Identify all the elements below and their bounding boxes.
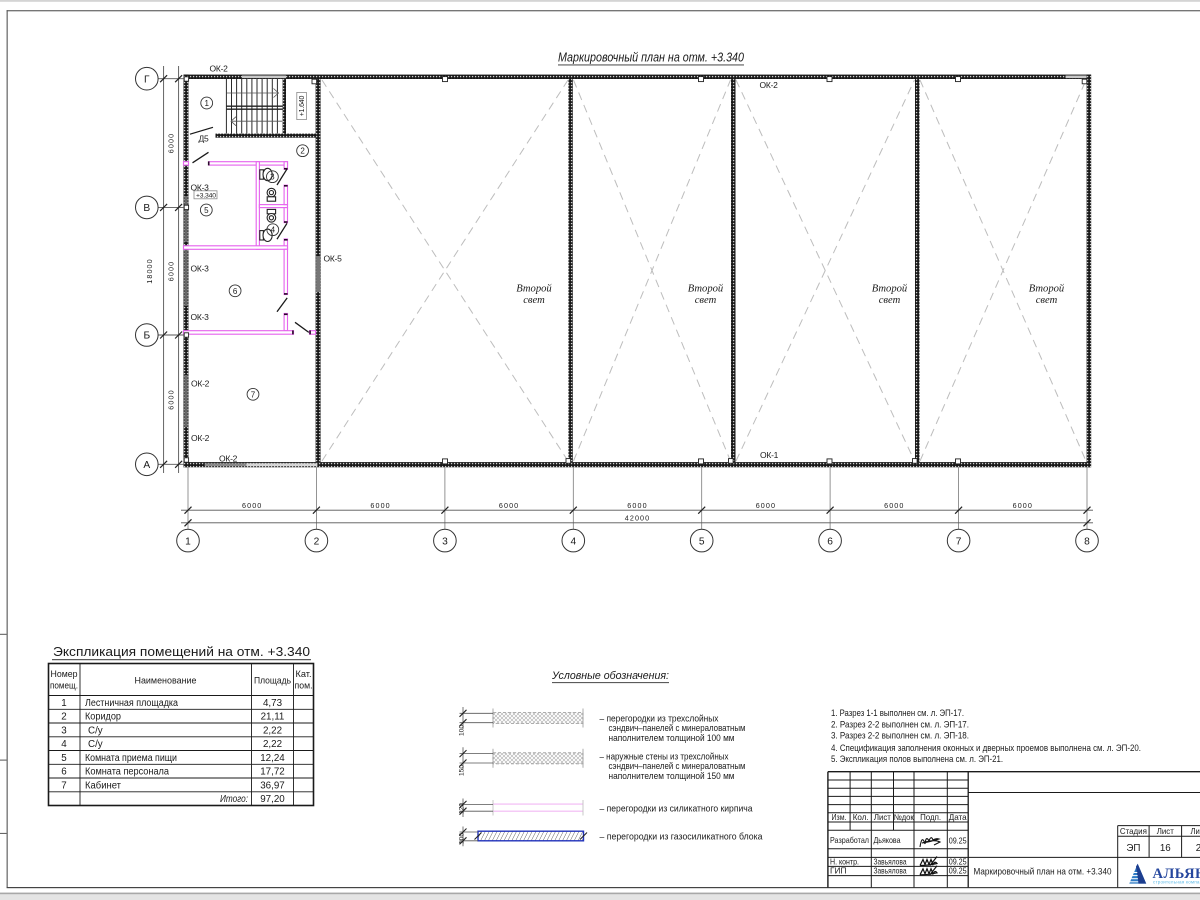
svg-text:Дьякова: Дьякова <box>874 835 901 845</box>
svg-text:наполнителем толщиной 100 мм: наполнителем толщиной 100 мм <box>609 733 735 743</box>
svg-text:5. Экспликация полов выполнена: 5. Экспликация полов выполнена см. л. ЭП… <box>831 753 1003 764</box>
svg-text:Комната персонала: Комната персонала <box>85 767 170 778</box>
svg-text:6: 6 <box>827 536 833 547</box>
svg-text:ОК-3: ОК-3 <box>191 183 210 193</box>
svg-text:Лист: Лист <box>874 812 891 822</box>
svg-text:– наружные стены из трехслойны: – наружные стены из трехслойных <box>600 752 729 762</box>
svg-text:Кабинет: Кабинет <box>85 781 121 792</box>
svg-text:3. Разрез 2-2 выполнен см. л.: 3. Разрез 2-2 выполнен см. л. ЭП-18. <box>831 730 969 741</box>
svg-text:свет: свет <box>523 295 545 306</box>
svg-text:6000: 6000 <box>884 501 904 510</box>
svg-text:Лист: Лист <box>1157 826 1174 836</box>
svg-text:09.25: 09.25 <box>949 836 967 846</box>
svg-text:1: 1 <box>204 99 209 108</box>
svg-text:ОК-2: ОК-2 <box>219 453 238 463</box>
svg-text:Д5: Д5 <box>199 133 210 143</box>
svg-text:97,20: 97,20 <box>260 794 285 805</box>
svg-text:2: 2 <box>300 147 305 156</box>
svg-text:4. Спецификация заполнения око: 4. Спецификация заполнения оконных и две… <box>831 742 1141 753</box>
svg-text:2: 2 <box>61 712 66 723</box>
svg-text:2: 2 <box>1196 843 1200 854</box>
svg-text:ГИП: ГИП <box>830 866 847 876</box>
svg-text:Второй: Второй <box>688 284 724 295</box>
svg-text:36,97: 36,97 <box>260 781 285 792</box>
svg-text:6000: 6000 <box>370 501 390 510</box>
svg-text:Б: Б <box>143 331 150 342</box>
svg-text:сэндвич–панелей с минераловатн: сэндвич–панелей с минераловатным <box>609 761 746 771</box>
svg-text:Кат.: Кат. <box>296 669 312 680</box>
svg-text:Комната приема пищи: Комната приема пищи <box>85 753 177 764</box>
svg-text:6000: 6000 <box>167 389 176 409</box>
svg-text:09.25: 09.25 <box>949 866 967 876</box>
svg-text:1. Разрез 1-1 выполнен см. л.: 1. Разрез 1-1 выполнен см. л. ЭП-17. <box>831 707 964 718</box>
svg-text:пом.: пом. <box>295 681 313 692</box>
svg-text:100: 100 <box>459 725 466 736</box>
svg-text:4: 4 <box>570 536 576 547</box>
svg-text:6000: 6000 <box>167 261 176 281</box>
svg-text:Площадь: Площадь <box>254 676 291 687</box>
svg-text:3: 3 <box>270 173 275 182</box>
svg-text:42000: 42000 <box>625 513 651 522</box>
svg-text:– перегородки из газосиликатно: – перегородки из газосиликатного блока <box>600 832 763 842</box>
svg-text:№док: №док <box>894 812 914 822</box>
svg-text:5: 5 <box>61 753 67 764</box>
svg-text:Листов: Листов <box>1191 826 1200 836</box>
svg-text:7: 7 <box>61 781 66 792</box>
svg-text:Подп.: Подп. <box>920 812 941 822</box>
svg-text:150: 150 <box>459 765 466 776</box>
svg-text:А: А <box>143 460 150 471</box>
svg-text:ОК-5: ОК-5 <box>324 254 343 264</box>
svg-text:4,73: 4,73 <box>263 698 283 709</box>
svg-text:6000: 6000 <box>627 501 647 510</box>
svg-text:6000: 6000 <box>1013 501 1033 510</box>
svg-text:+3.340: +3.340 <box>196 192 216 199</box>
svg-text:3: 3 <box>442 536 448 547</box>
svg-text:18000: 18000 <box>145 258 154 284</box>
svg-text:2,22: 2,22 <box>263 726 282 737</box>
svg-text:свет: свет <box>1036 295 1058 306</box>
svg-text:свет: свет <box>879 295 901 306</box>
svg-text:– перегородки из трехслойных: – перегородки из трехслойных <box>600 714 719 724</box>
svg-text:120: 120 <box>459 803 466 814</box>
svg-text:ЭП: ЭП <box>1126 843 1140 854</box>
svg-text:С/у: С/у <box>88 739 103 750</box>
svg-text:Маркировочный план на отм. +3.: Маркировочный план на отм. +3.340 <box>558 50 744 64</box>
svg-text:2. Разрез 2-2 выполнен см. л.: 2. Разрез 2-2 выполнен см. л. ЭП-17. <box>831 718 969 729</box>
svg-text:Итого:: Итого: <box>220 794 248 805</box>
svg-text:7: 7 <box>251 390 256 399</box>
svg-text:6000: 6000 <box>167 133 176 153</box>
svg-text:Разработал: Разработал <box>830 835 869 845</box>
svg-text:1: 1 <box>185 536 191 547</box>
svg-text:1: 1 <box>61 698 66 709</box>
svg-text:21,11: 21,11 <box>261 712 285 723</box>
svg-text:4: 4 <box>61 739 67 750</box>
svg-text:Второй: Второй <box>1029 284 1065 295</box>
svg-text:Лестничная площадка: Лестничная площадка <box>85 698 178 709</box>
svg-text:Маркировочный план на отм. +3.: Маркировочный план на отм. +3.340 <box>974 865 1112 876</box>
svg-text:+1.640: +1.640 <box>299 95 306 116</box>
svg-text:2,22: 2,22 <box>263 739 282 750</box>
svg-text:Стадия: Стадия <box>1120 826 1147 836</box>
svg-text:Второй: Второй <box>872 284 908 295</box>
svg-text:12,24: 12,24 <box>260 753 285 764</box>
svg-text:Завьялова: Завьялова <box>874 866 907 876</box>
svg-text:ОК-3: ОК-3 <box>191 263 210 273</box>
svg-text:сэндвич–панелей с минераловатн: сэндвич–панелей с минераловатным <box>609 723 746 733</box>
svg-text:наполнителем толщиной 150 мм: наполнителем толщиной 150 мм <box>609 771 735 781</box>
svg-text:8: 8 <box>1084 536 1090 547</box>
svg-text:5: 5 <box>699 536 705 547</box>
svg-text:Второй: Второй <box>516 284 552 295</box>
svg-text:2: 2 <box>314 536 320 547</box>
svg-text:16: 16 <box>1160 843 1171 854</box>
svg-text:5: 5 <box>204 206 209 215</box>
svg-text:строительная компания: строительная компания <box>1153 879 1200 884</box>
svg-text:Наименование: Наименование <box>135 676 197 687</box>
svg-text:7: 7 <box>956 536 962 547</box>
svg-text:6: 6 <box>61 767 67 778</box>
svg-text:В: В <box>143 203 150 214</box>
svg-text:ОК-1: ОК-1 <box>760 450 779 460</box>
svg-text:Условные обозначения:: Условные обозначения: <box>551 670 669 682</box>
svg-text:6: 6 <box>233 287 238 296</box>
svg-text:ОК-2: ОК-2 <box>191 433 210 443</box>
svg-text:ОК-3: ОК-3 <box>191 312 210 322</box>
svg-text:Номер: Номер <box>51 669 78 680</box>
svg-text:ОК-2: ОК-2 <box>191 378 210 388</box>
svg-text:100: 100 <box>459 833 466 844</box>
svg-text:4: 4 <box>271 226 276 235</box>
svg-text:Экспликация помещений на отм.: Экспликация помещений на отм. +3.340 <box>53 644 310 659</box>
svg-text:Г: Г <box>144 74 150 85</box>
svg-text:6000: 6000 <box>756 501 776 510</box>
svg-text:Дата: Дата <box>949 812 967 822</box>
svg-text:Изм.: Изм. <box>832 812 847 822</box>
svg-text:ОК-2: ОК-2 <box>210 63 229 73</box>
svg-text:ОК-2: ОК-2 <box>760 80 779 90</box>
svg-text:Кол.: Кол. <box>853 812 869 822</box>
svg-text:3: 3 <box>61 726 67 737</box>
svg-text:6000: 6000 <box>499 501 519 510</box>
svg-text:помещ.: помещ. <box>50 681 78 692</box>
svg-text:С/у: С/у <box>88 726 103 737</box>
svg-text:– перегородки из силикатного к: – перегородки из силикатного кирпича <box>600 804 753 814</box>
svg-text:17,72: 17,72 <box>260 767 285 778</box>
svg-text:6000: 6000 <box>242 501 262 510</box>
svg-text:свет: свет <box>695 295 717 306</box>
svg-text:Коридор: Коридор <box>85 712 122 723</box>
